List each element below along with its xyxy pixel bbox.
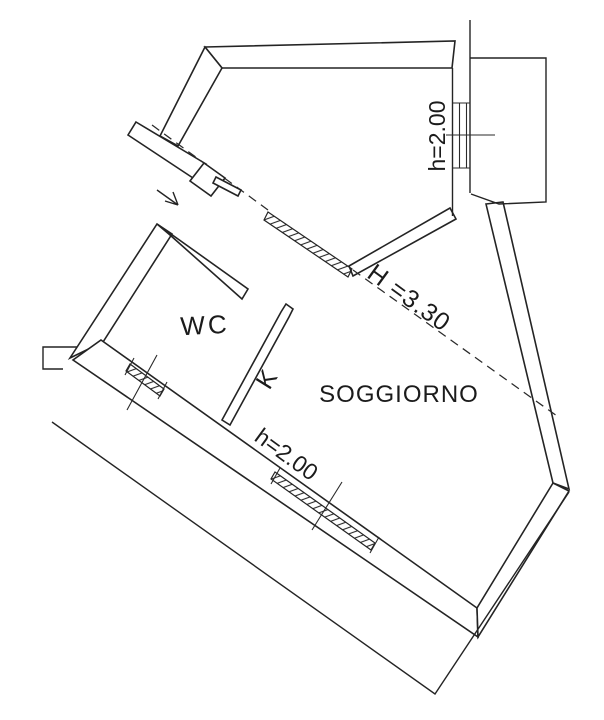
wall-attic-diagonal [349,208,456,276]
walls [70,41,569,637]
floor-plan-page: WC K SOGGIORNO h=2.00 h=2.00 H =3.30 [0,0,604,720]
entrance-arrow [157,190,178,205]
wall-attic-top [205,41,455,68]
wall-attic-left [160,47,222,146]
wall-kitchen-partition [222,304,293,425]
living-room-window-sill [271,472,375,550]
entry-door [157,163,241,205]
attic-parapet-sill [264,212,352,277]
floor-plan-drawing: WC K SOGGIORNO h=2.00 h=2.00 H =3.30 [0,0,604,720]
wall-wc-top [157,224,248,299]
label-ridge-height: H =3.30 [362,259,456,338]
label-wc: WC [180,309,231,342]
left-wall-stub [43,347,77,369]
balcony-outline [470,58,546,204]
label-window-height-top: h=2.00 [424,101,450,172]
wall-wc-left [70,224,172,358]
label-soggiorno: SOGGIORNO [319,381,479,408]
wall-bottom-right-exterior [477,483,569,637]
wall-right-exterior [486,202,569,489]
